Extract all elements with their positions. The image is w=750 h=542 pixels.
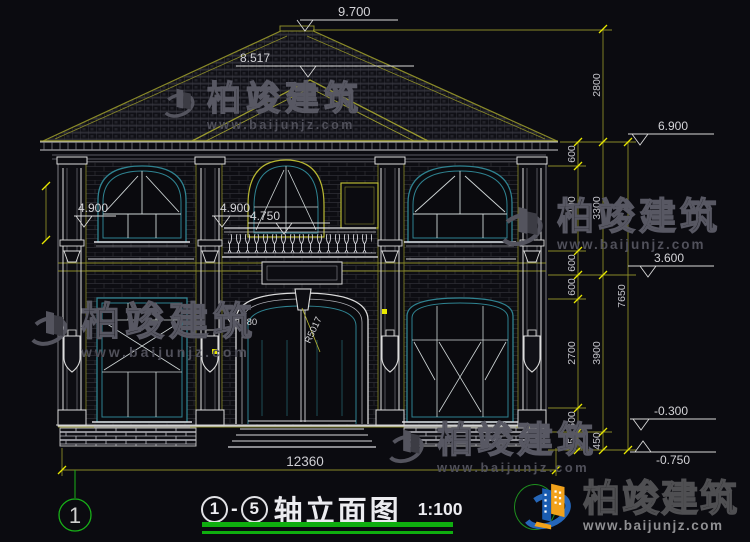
watermark-left: 柏竣建筑 www.baijunjz.com — [26, 303, 257, 360]
axis-start-chip: 1 — [201, 496, 228, 523]
axis-bubble-1: 1 — [59, 470, 91, 531]
watermark-logo-icon — [384, 422, 430, 468]
balcony-balustrade — [222, 228, 378, 257]
axis-1-label: 1 — [69, 503, 81, 528]
level-ground-out-label: -0.300 — [654, 404, 688, 418]
brand-url: www.baijunjz.com — [583, 518, 739, 533]
left-upper-window — [94, 166, 190, 246]
watermark-name: 柏竣建筑 — [81, 303, 257, 342]
watermark-name: 柏竣建筑 — [207, 82, 363, 116]
dim-inner-4: 600 — [566, 278, 578, 296]
level-eave-label: 6.900 — [658, 119, 688, 133]
level-left-window-label: 4.900 — [78, 201, 108, 215]
brand-name: 柏竣建筑 — [583, 480, 739, 517]
dim-mid-3: 3900 — [591, 341, 603, 365]
dim-inner-3: 600 — [566, 254, 578, 272]
title-underline-thin — [202, 531, 453, 534]
watermark-logo-icon — [160, 82, 200, 122]
level-ridge-label: 9.700 — [338, 4, 371, 19]
brand-logo-icon — [521, 477, 579, 535]
level-foundation-label: -0.750 — [656, 453, 690, 467]
title-underline-thick — [202, 522, 453, 527]
watermark-logo-icon — [496, 198, 550, 252]
level-center-balcony-label: 4.750 — [250, 209, 280, 223]
brand-footer: 柏竣建筑 www.baijunjz.com — [521, 477, 739, 535]
center-upper-window — [248, 160, 324, 237]
watermark-name: 柏竣建筑 — [437, 422, 597, 458]
watermark-right: 柏竣建筑 www.baijunjz.com — [496, 198, 721, 252]
level-second-floor-label: 3.600 — [654, 251, 684, 265]
watermark-url: www.baijunjz.com — [437, 460, 597, 475]
dim-inner-5: 2700 — [566, 341, 578, 365]
watermark-url: www.baijunjz.com — [557, 237, 721, 252]
watermark-name: 柏竣建筑 — [557, 198, 721, 235]
right-lower-window — [402, 298, 518, 427]
dim-inner-1: 600 — [566, 145, 578, 163]
watermark-url: www.baijunjz.com — [207, 118, 363, 132]
watermark-logo-icon — [26, 303, 74, 351]
axis-range-dash: - — [231, 498, 238, 521]
dim-total-height: 7650 — [616, 284, 628, 308]
dim-mid-1: 2800 — [591, 73, 603, 97]
watermark-top: 柏竣建筑 www.baijunjz.com — [160, 82, 363, 132]
cad-canvas: 9.700 8.517 6.900 3.600 -0.300 -0.750 4.… — [0, 0, 750, 542]
dim-bottom-total: 12360 — [286, 454, 324, 469]
cornice — [40, 142, 558, 159]
level-pediment-label: 8.517 — [240, 51, 270, 65]
watermark-url: www.baijunjz.com — [81, 344, 257, 360]
watermark-bottom: 柏竣建筑 www.baijunjz.com — [384, 422, 597, 475]
level-center-window-label: 4.900 — [220, 201, 250, 215]
center-niche — [341, 183, 378, 228]
elevation-drawing: 9.700 8.517 6.900 3.600 -0.300 -0.750 4.… — [0, 0, 750, 542]
axis-end-chip: 5 — [241, 496, 268, 523]
drawing-scale: 1:100 — [418, 499, 463, 520]
